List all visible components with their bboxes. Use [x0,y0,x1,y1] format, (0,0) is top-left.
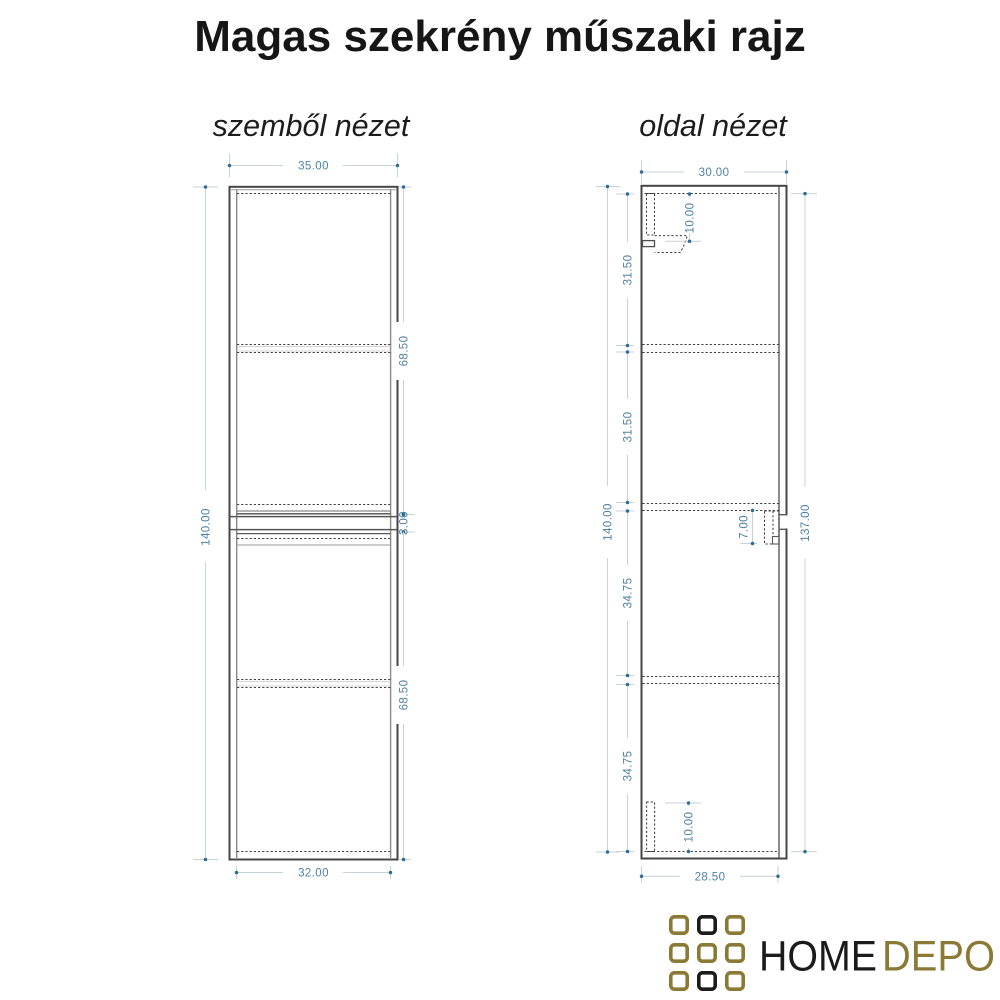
svg-text:31.50: 31.50 [623,412,635,443]
svg-text:32.00: 32.00 [298,868,329,880]
svg-text:30.00: 30.00 [699,167,730,179]
svg-text:10.00: 10.00 [684,812,696,843]
svg-text:68.50: 68.50 [399,680,411,711]
svg-text:137.00: 137.00 [800,504,812,542]
svg-text:35.00: 35.00 [298,161,329,173]
svg-text:10.00: 10.00 [685,203,697,234]
svg-text:Magas szekrény műszaki rajz: Magas szekrény műszaki rajz [194,12,805,61]
svg-text:34.75: 34.75 [623,751,635,782]
svg-text:28.50: 28.50 [695,871,726,883]
svg-text:68.50: 68.50 [399,336,411,367]
svg-text:DEPO: DEPO [882,933,995,981]
svg-text:140.00: 140.00 [603,503,615,541]
svg-text:HOME: HOME [759,933,877,981]
svg-text:szemből nézet: szemből nézet [213,109,411,143]
svg-text:7.00: 7.00 [738,515,750,539]
svg-text:31.50: 31.50 [623,255,635,286]
svg-text:140.00: 140.00 [201,508,213,546]
svg-text:oldal nézet: oldal nézet [639,109,788,143]
svg-text:3.00: 3.00 [399,511,411,535]
svg-text:34.75: 34.75 [623,578,635,609]
